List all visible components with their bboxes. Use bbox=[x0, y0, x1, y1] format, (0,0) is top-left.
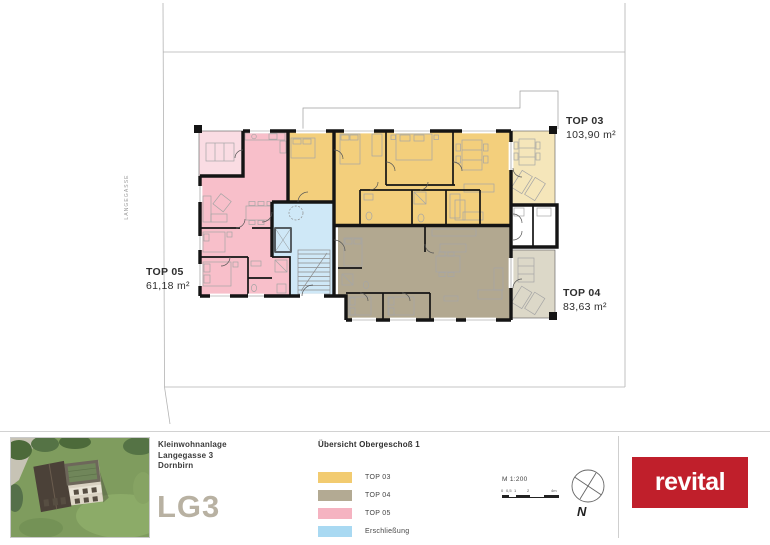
floor-plan-drawing bbox=[0, 0, 770, 432]
project-code: LG3 bbox=[157, 489, 220, 525]
title-block: Kleinwohnanlage Langegasse 3 Dornbirn LG… bbox=[0, 431, 770, 545]
unit-label-top05: TOP 05 61,18 m² bbox=[146, 266, 190, 293]
unit-name: TOP 04 bbox=[563, 287, 607, 301]
project-street: Langegasse 3 bbox=[158, 451, 227, 462]
legend-swatch-circulation bbox=[318, 526, 352, 537]
unit-area: 83,63 m² bbox=[563, 301, 607, 315]
legend-swatch-top05 bbox=[318, 508, 352, 519]
north-arrow-icon bbox=[568, 466, 608, 506]
scale-bar bbox=[502, 495, 559, 498]
legend-swatch-top03 bbox=[318, 472, 352, 483]
project-name: Kleinwohnanlage bbox=[158, 440, 227, 451]
legend-label: TOP 05 bbox=[365, 510, 391, 517]
unit-name: TOP 05 bbox=[146, 266, 190, 280]
titleblock-divider bbox=[618, 436, 619, 538]
legend-row-top05: TOP 05 bbox=[318, 504, 409, 522]
sheet-title: Übersicht Obergeschoß 1 bbox=[318, 440, 420, 449]
legend-row-top03: TOP 03 bbox=[318, 468, 409, 486]
unit-area: 103,90 m² bbox=[566, 129, 616, 143]
street-name-label: LANGEGASSE bbox=[124, 162, 130, 232]
legend-label: Erschließung bbox=[365, 528, 409, 535]
project-city: Dornbirn bbox=[158, 461, 227, 472]
company-logo: revital bbox=[632, 457, 748, 508]
aerial-photo-graphic bbox=[11, 438, 149, 537]
unit-name: TOP 03 bbox=[566, 115, 616, 129]
legend-label: TOP 03 bbox=[365, 474, 391, 481]
legend: TOP 03 TOP 04 TOP 05 Erschließung bbox=[318, 468, 409, 540]
legend-row-top04: TOP 04 bbox=[318, 486, 409, 504]
legend-swatch-top04 bbox=[318, 490, 352, 501]
scale-label: M 1:200 bbox=[502, 476, 528, 483]
project-info: Kleinwohnanlage Langegasse 3 Dornbirn bbox=[158, 440, 227, 472]
storage-rooms-region bbox=[511, 205, 557, 247]
legend-label: TOP 04 bbox=[365, 492, 391, 499]
unit-label-top04: TOP 04 83,63 m² bbox=[563, 287, 607, 314]
floor-plan-area: TOP 03 103,90 m² TOP 04 83,63 m² TOP 05 … bbox=[0, 0, 770, 432]
site-photo bbox=[10, 437, 150, 538]
unit-label-top03: TOP 03 103,90 m² bbox=[566, 115, 616, 142]
north-label: N bbox=[577, 504, 586, 519]
scale-tick-labels: 0 0,5 1 2 4m bbox=[502, 488, 564, 493]
legend-row-circulation: Erschließung bbox=[318, 522, 409, 540]
unit-area: 61,18 m² bbox=[146, 280, 190, 294]
company-logo-text: revital bbox=[655, 468, 725, 497]
roof-outline-thin bbox=[303, 91, 558, 129]
